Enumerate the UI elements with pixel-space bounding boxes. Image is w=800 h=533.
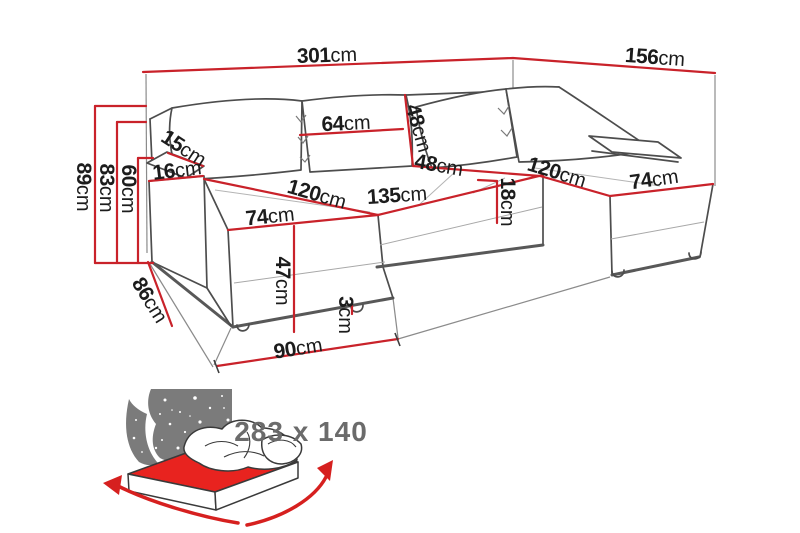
dim-label-chaise-floor-width: 90cm: [272, 333, 324, 363]
dim-label-back-cushion-width: 64cm: [321, 111, 371, 137]
dim-label-seat-thickness: 18cm: [496, 177, 519, 226]
dim-label-chaise-left-width: 74cm: [244, 202, 295, 230]
dim-label-middle-seat-width: 135cm: [366, 182, 428, 209]
dim-label-seat-height: 47cm: [271, 256, 294, 305]
diagram-canvas: 301cm 156cm 89cm 83cm 60cm 15cm 16cm 64c…: [0, 0, 800, 533]
dim-label-leg-height: 3cm: [334, 296, 357, 334]
dim-label-height-backrest: 83cm: [95, 163, 118, 212]
sleeping-area-label: 283 x 140: [234, 416, 368, 447]
dim-label-chaise-left-length: 120cm: [285, 175, 349, 214]
dim-label-height-total: 89cm: [72, 162, 95, 211]
dim-label-side-floor-depth: 86cm: [127, 273, 172, 327]
sofa-legs: [237, 252, 701, 331]
sofa-outline: [147, 87, 713, 331]
dim-label-total-width: 301cm: [297, 43, 358, 68]
dim-label-height-armrest: 60cm: [117, 164, 140, 213]
dim-label-total-depth: 156cm: [624, 44, 686, 71]
sofa-bed-function-icon: [103, 389, 333, 525]
sofa-dimension-diagram: 301cm 156cm 89cm 83cm 60cm 15cm 16cm 64c…: [0, 0, 800, 533]
